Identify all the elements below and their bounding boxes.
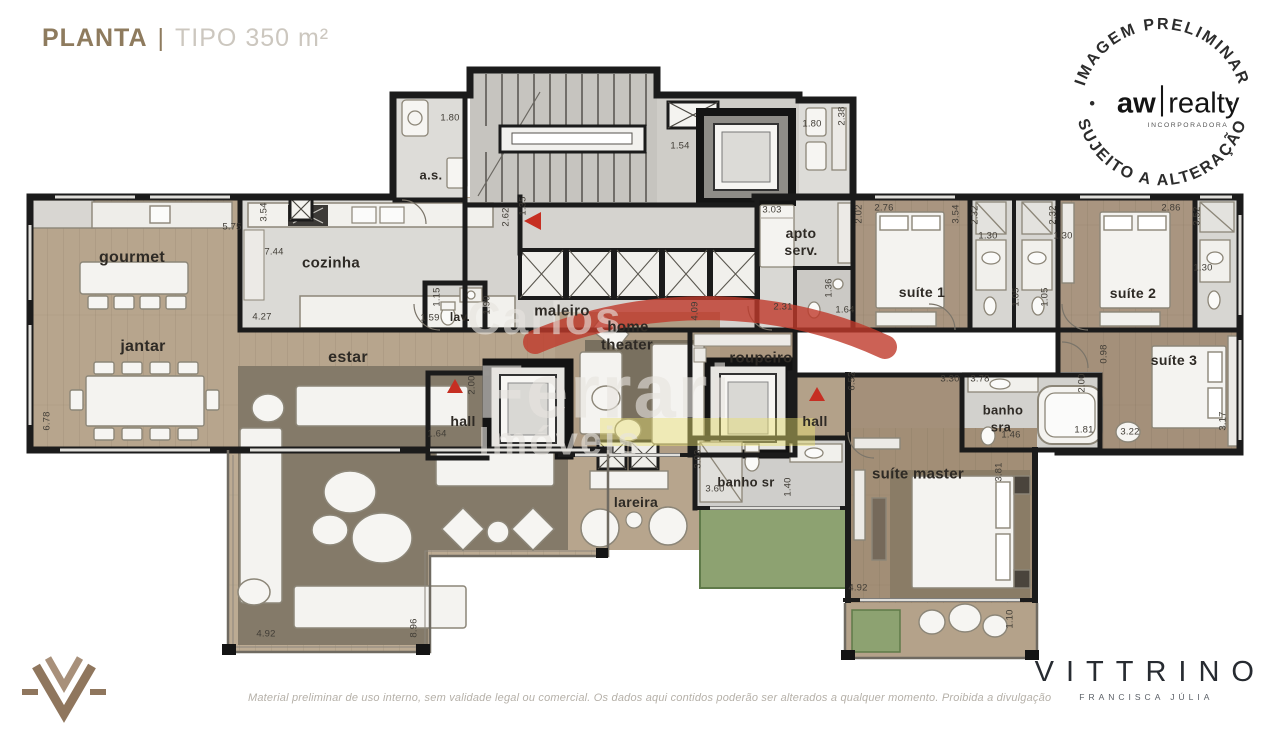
- floor-plan-page: Carlos Ferrari Imóveis gourmetjantarcozi…: [0, 0, 1280, 746]
- footer-disclaimer: Material preliminar de uso interno, sem …: [248, 692, 1051, 704]
- page-title-primary: PLANTA: [42, 24, 148, 52]
- brand-name: VITTRINO: [1035, 656, 1266, 689]
- storage-boxes: [520, 250, 758, 298]
- svg-text:IMAGEM PRELIMINAR: IMAGEM PRELIMINAR: [1071, 15, 1253, 88]
- stamp-brand-sub: INCORPORADORA: [1148, 122, 1229, 129]
- stamp-arc-top: IMAGEM PRELIMINAR: [1071, 15, 1253, 88]
- page-title: PLANTA|TIPO 350 m²: [42, 24, 329, 53]
- stamp-brand-left: aw: [1117, 87, 1156, 119]
- brand-subtitle: FRANCISCA JÚLIA: [1035, 692, 1258, 702]
- brand-block: VITTRINO FRANCISCA JÚLIA: [1035, 656, 1254, 702]
- page-title-divider: |: [158, 24, 166, 52]
- elevator-hall-left: [487, 363, 569, 455]
- stamp-dot-left: •: [1089, 94, 1095, 113]
- preliminary-stamp: IMAGEM PRELIMINAR SUJEITO A ALTERAÇÃO • …: [1058, 0, 1266, 208]
- v-monogram-logo: [18, 646, 110, 734]
- stamp-brand-right: realty: [1168, 87, 1240, 119]
- page-title-secondary: TIPO 350 m²: [175, 24, 329, 52]
